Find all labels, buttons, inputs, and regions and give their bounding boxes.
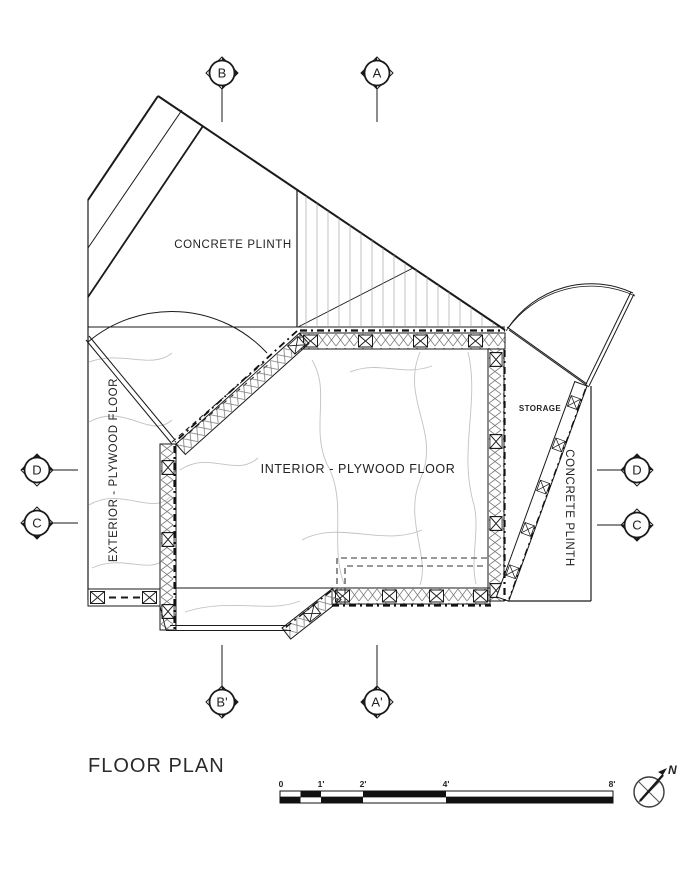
floor-plan-drawing: CONCRETE PLINTH EXTERIOR - PLYWOOD FLOOR…	[0, 0, 700, 870]
section-marker-b-label: B	[218, 66, 227, 81]
section-marker-a-prime-label: A'	[371, 695, 382, 710]
section-marker-d-left: D	[21, 454, 78, 486]
scale-tick-2: 2'	[360, 779, 367, 789]
section-marker-d-left-label: D	[32, 463, 41, 478]
floor-contour-lines	[89, 352, 476, 612]
wall-bottom	[332, 588, 490, 604]
north-indicator: N	[634, 763, 677, 807]
label-storage: STORAGE	[519, 404, 561, 413]
section-marker-a-prime: A'	[361, 645, 393, 718]
section-marker-c-right-label: C	[632, 518, 641, 533]
membrane-dash-lines	[175, 331, 586, 630]
floor-plan-sheet: CONCRETE PLINTH EXTERIOR - PLYWOOD FLOOR…	[0, 0, 700, 870]
wall-right	[488, 349, 504, 601]
section-marker-d-right: D	[597, 454, 653, 486]
section-marker-c-left-label: C	[32, 516, 41, 531]
wall-diagonal-upper	[176, 333, 309, 454]
scale-bar: 0 1' 2' 4' 8'	[279, 779, 616, 803]
section-marker-c-left: C	[21, 507, 78, 539]
drawing-title: FLOOR PLAN	[88, 755, 225, 777]
label-concrete-plinth-top: CONCRETE PLINTH	[174, 239, 292, 251]
section-marker-a: A	[361, 57, 393, 122]
section-marker-b-prime-label: B'	[216, 695, 227, 710]
wall-top	[300, 333, 505, 349]
section-marker-c-right: C	[597, 509, 653, 541]
north-label: N	[668, 763, 677, 777]
section-marker-b-prime: B'	[206, 645, 238, 718]
label-concrete-plinth-right: CONCRETE PLINTH	[563, 449, 575, 567]
label-interior-floor: INTERIOR - PLYWOOD FLOOR	[261, 462, 456, 476]
right-pivot-door	[506, 284, 635, 387]
wall-sill	[88, 589, 160, 606]
scale-tick-8: 8'	[609, 779, 616, 789]
scale-tick-4: 4'	[443, 779, 450, 789]
section-marker-b: B	[206, 57, 238, 122]
label-exterior-floor: EXTERIOR - PLYWOOD FLOOR	[108, 378, 120, 562]
section-marker-a-label: A	[373, 66, 382, 81]
wall-diagonal-lower	[282, 589, 341, 639]
section-marker-d-right-label: D	[632, 463, 641, 478]
scale-tick-1: 1'	[318, 779, 325, 789]
scale-tick-0: 0	[279, 779, 284, 789]
north-arrowhead-icon	[658, 768, 667, 775]
